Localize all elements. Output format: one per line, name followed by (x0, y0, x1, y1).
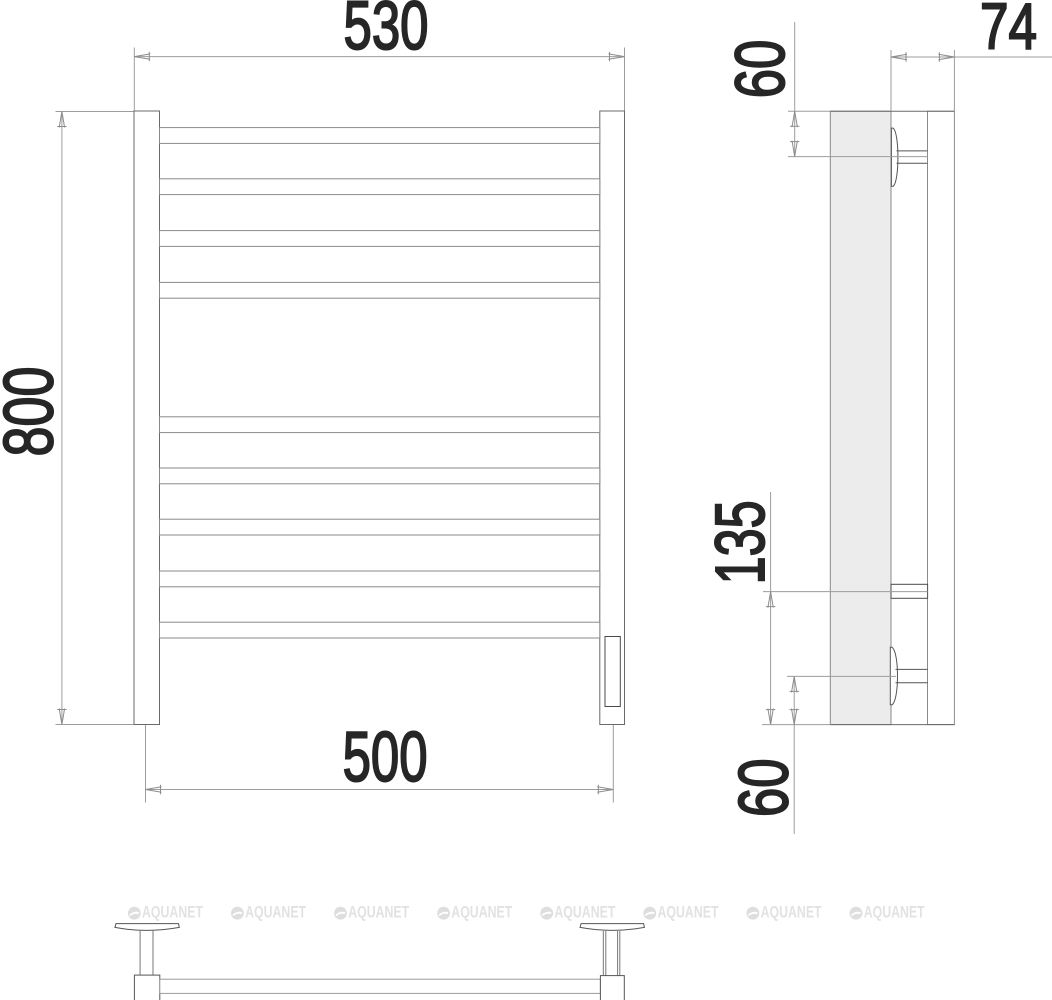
svg-text:AQUANET: AQUANET (451, 903, 513, 922)
svg-text:800: 800 (0, 367, 68, 457)
svg-text:60: 60 (724, 759, 802, 818)
svg-text:135: 135 (701, 500, 779, 584)
svg-text:530: 530 (344, 0, 429, 64)
svg-text:AQUANET: AQUANET (864, 903, 926, 922)
svg-text:AQUANET: AQUANET (761, 903, 823, 922)
svg-text:AQUANET: AQUANET (245, 903, 307, 922)
svg-text:60: 60 (721, 40, 799, 99)
svg-text:AQUANET: AQUANET (658, 903, 720, 922)
svg-text:AQUANET: AQUANET (348, 903, 410, 922)
svg-text:500: 500 (343, 717, 428, 796)
svg-text:AQUANET: AQUANET (142, 903, 204, 922)
svg-text:AQUANET: AQUANET (554, 903, 616, 922)
svg-text:74: 74 (980, 0, 1037, 62)
